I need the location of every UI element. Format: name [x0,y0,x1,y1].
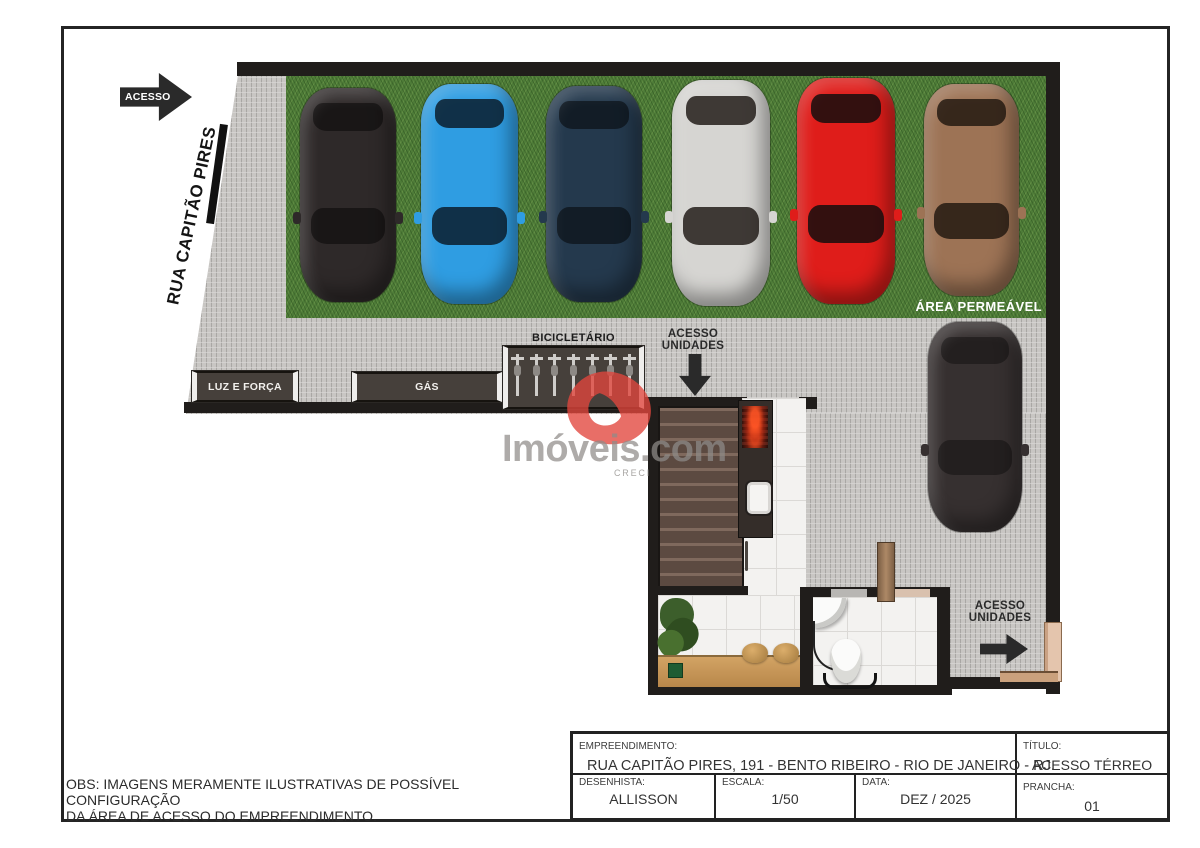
title-block-left: EMPREENDIMENTO: RUA CAPITÃO PIRES, 191 -… [573,734,1017,818]
title-label: TÍTULO: [1023,741,1061,752]
scale-value: 1/50 [722,791,848,807]
bicycle-icon [535,354,538,396]
car-rear-window [937,99,1005,127]
obs-note: OBS: IMAGENS MERAMENTE ILUSTRATIVAS DE P… [66,776,546,824]
car-mirror-icon [517,212,525,224]
car-windshield [934,203,1008,239]
stool-icon [773,643,799,663]
parked-car-blue [421,84,518,304]
car-mirror-icon [293,212,301,224]
car-rear-window [313,103,382,131]
car-mirror-icon [665,211,673,223]
scale-label: ESCALA: [722,777,848,788]
car-windshield [557,207,632,244]
car-mirror-icon [539,211,547,223]
permeable-area-label: ÁREA PERMEÁVEL [916,299,1042,314]
toilet-mat [823,673,877,689]
units-access-top-label: ACESSO UNIDADES [648,328,738,352]
sheet-number-value: 01 [1023,798,1161,814]
parked-car-silver [672,80,770,306]
top-boundary-wall [237,62,1060,76]
bathroom-vent-sill [831,589,867,597]
car-rear-window [941,337,1009,364]
bicycle-icon [553,354,556,396]
car-mirror-icon [921,444,929,456]
right-boundary-wall [1046,62,1060,694]
car-mirror-icon [1018,207,1026,219]
parked-car-black [300,88,396,302]
project-label: EMPREENDIMENTO: [579,741,677,752]
car-windshield [808,205,884,243]
power-box: LUZ E FORÇA [192,371,298,402]
parked-car-brown [924,84,1019,296]
watermark-subtext: CRECI [614,468,651,478]
obs-line-2: DA ÁREA DE ACESSO DO EMPREENDIMENTO. [66,808,546,824]
bathroom-right-wall [937,587,950,687]
date-value: DEZ / 2025 [862,791,1009,807]
floor-plan-sheet: ÁREA PERMEÁVEL RUA CAPITÃO PIRES ACESSO … [0,0,1200,848]
car-rear-window [435,99,505,128]
street-access-label: ACESSO [120,91,171,103]
driveway-car-black [928,322,1022,532]
car-rear-window [559,101,628,129]
obs-line-1: OBS: IMAGENS MERAMENTE ILUSTRATIVAS DE P… [66,776,546,808]
wood-gate [877,542,895,602]
title-value: ACESSO TÉRREO [1023,757,1161,773]
watermark-brand: Imóveis.com [502,428,727,471]
title-block: EMPREENDIMENTO: RUA CAPITÃO PIRES, 191 -… [570,731,1170,821]
units-access-bottom-label: ACESSO UNIDADES [952,600,1048,624]
car-rear-window [686,96,757,125]
car-mirror-icon [917,207,925,219]
car-mirror-icon [641,211,649,223]
cabinet-handle [745,541,748,571]
car-mirror-icon [790,209,798,221]
parked-car-navy [546,86,642,302]
car-windshield [938,440,1011,476]
gas-box: GÁS [352,372,502,402]
sheet-number-label: PRANCHA: [1023,782,1075,793]
car-windshield [683,207,759,245]
date-label: DATA: [862,777,1009,788]
stove-icon [742,406,768,448]
car-mirror-icon [894,209,902,221]
parked-car-red [797,78,895,304]
car-mirror-icon [769,211,777,223]
bench-decor [668,663,683,678]
bathroom-left-wall [800,587,813,687]
stool-icon [742,643,768,663]
car-rear-window [811,94,882,123]
car-windshield [432,207,508,244]
entry-threshold [1000,671,1058,682]
bike-rack-label: BICICLETÁRIO [503,332,644,344]
kitchen-sink-icon [745,480,773,516]
bicycle-icon [516,354,519,396]
power-label: LUZ E FORÇA [208,381,282,393]
drafter-label: DESENHISTA: [579,777,708,788]
car-mirror-icon [414,212,422,224]
car-mirror-icon [395,212,403,224]
project-value: RUA CAPITÃO PIRES, 191 - BENTO RIBEIRO -… [579,758,1009,774]
drafter-value: ALLISSON [579,791,708,807]
car-mirror-icon [1021,444,1029,456]
title-block-right: TÍTULO: ACESSO TÉRREO PRANCHA: 01 [1017,734,1167,818]
car-windshield [311,208,386,244]
gas-label: GÁS [415,381,439,393]
